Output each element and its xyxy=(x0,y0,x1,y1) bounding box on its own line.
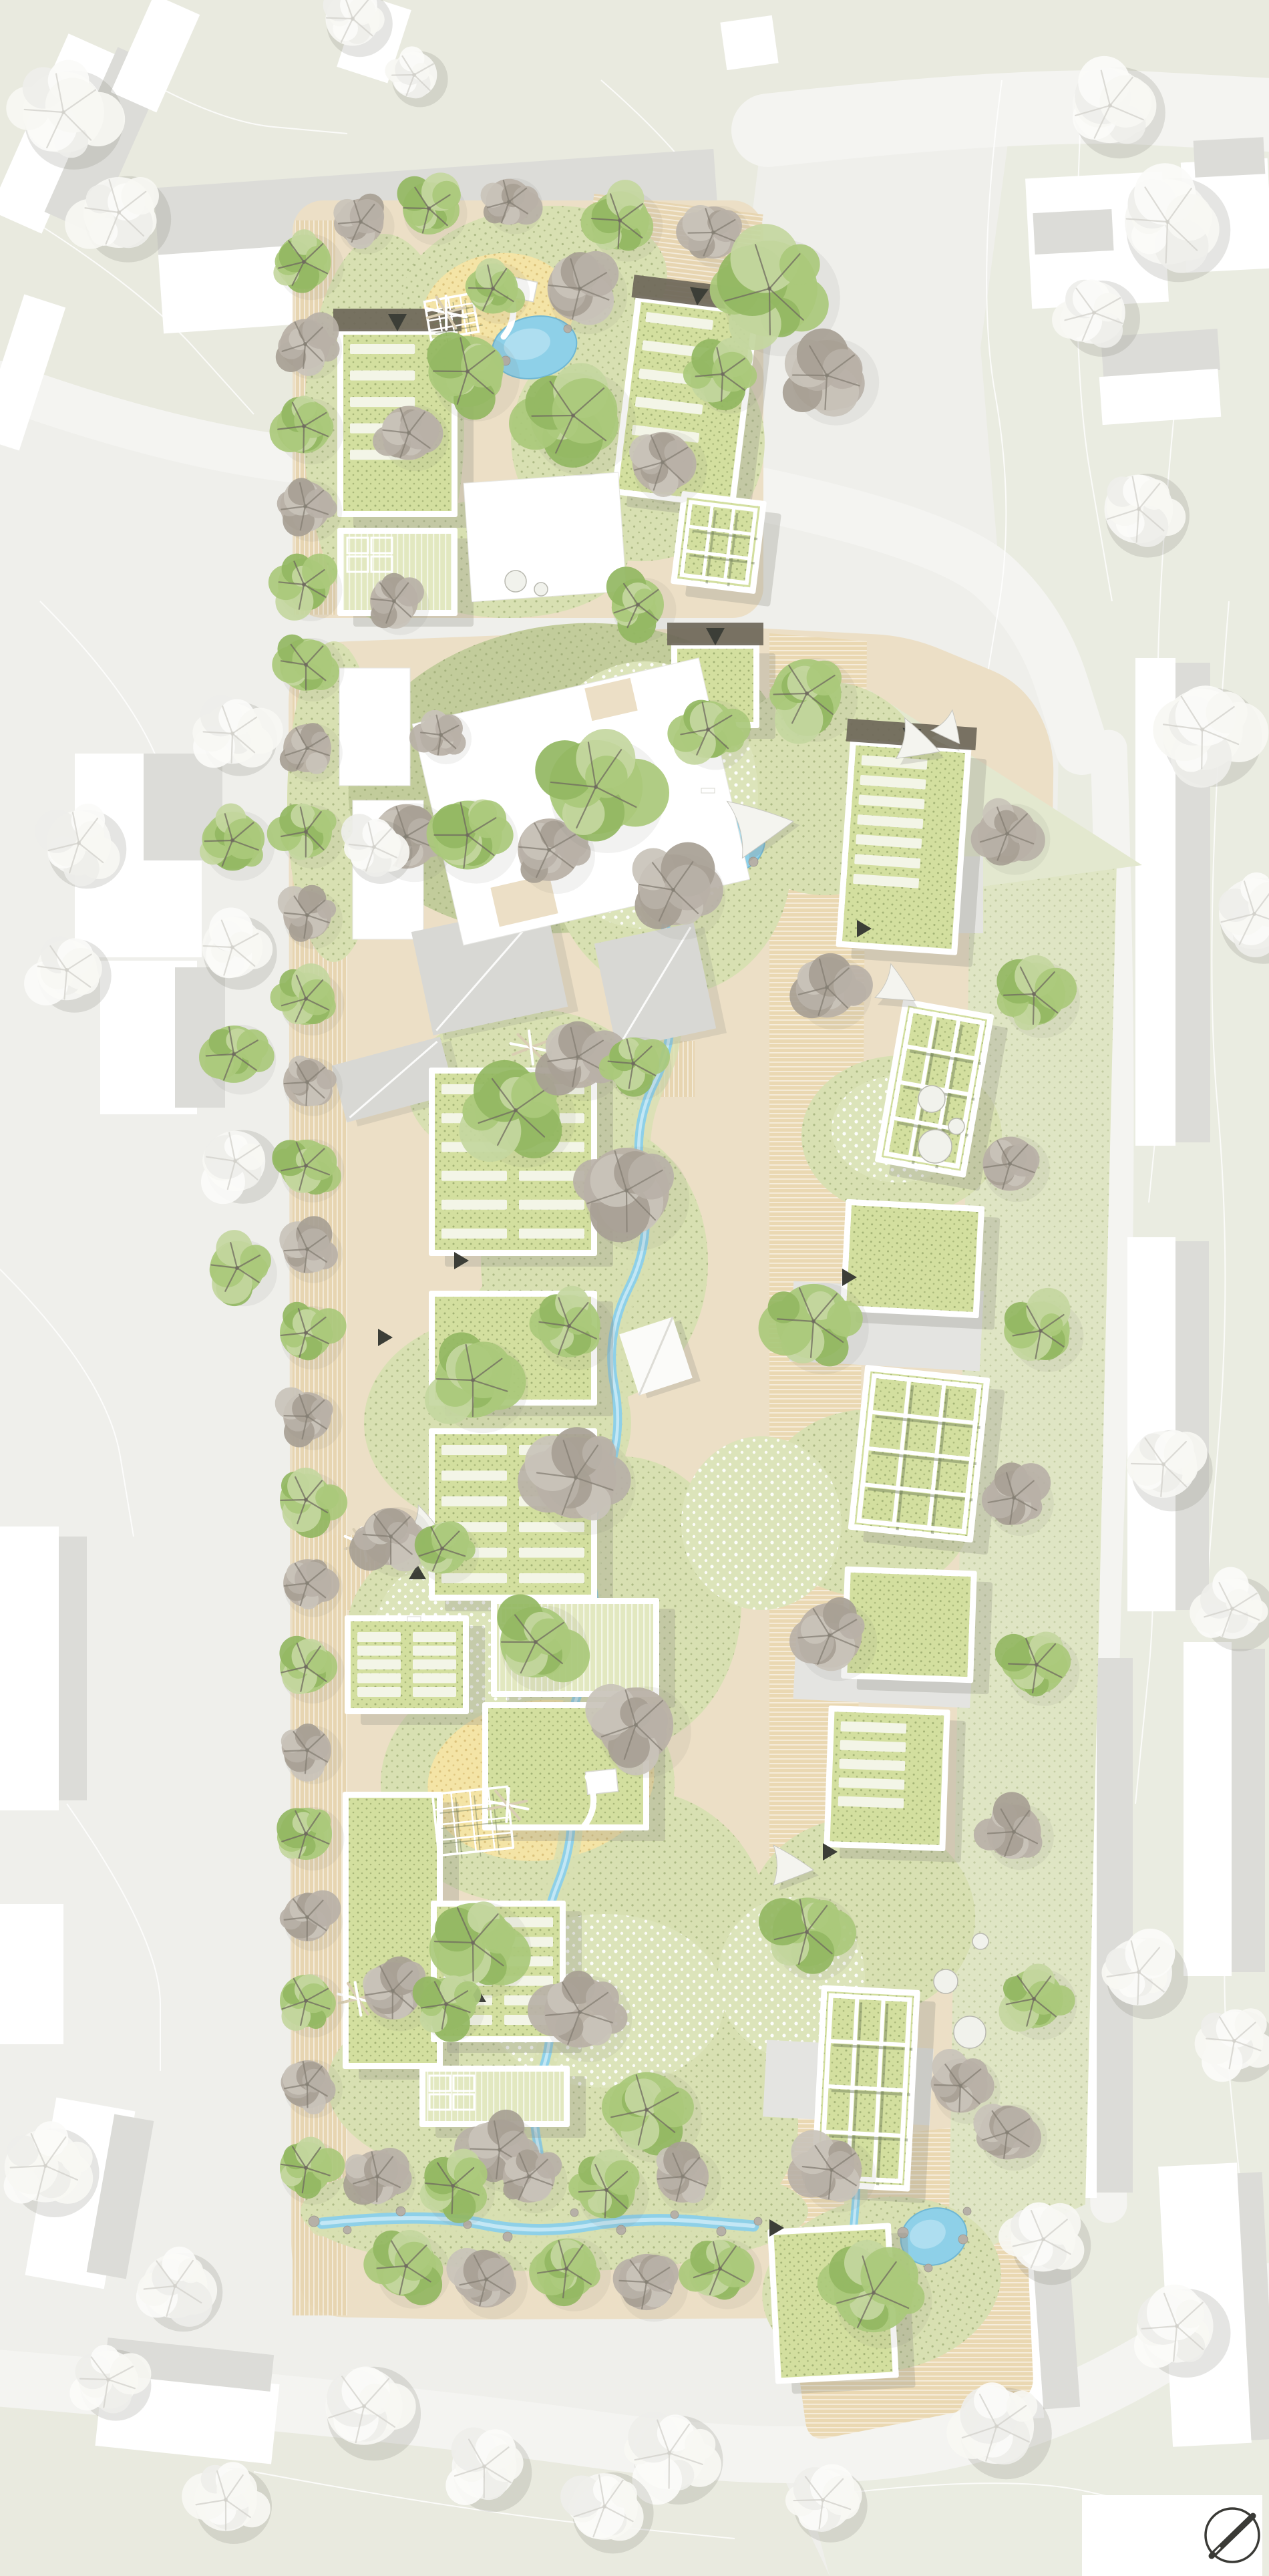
building xyxy=(345,1615,485,1725)
rock xyxy=(924,2264,932,2272)
bench xyxy=(407,1617,421,1621)
context-building xyxy=(1175,1241,1209,1610)
rock xyxy=(503,2232,512,2241)
building xyxy=(339,668,410,786)
tree-y xyxy=(548,251,628,334)
tree-g xyxy=(280,1974,345,2038)
building xyxy=(669,491,783,607)
context-building xyxy=(1033,209,1113,255)
context-building xyxy=(59,1537,87,1800)
building xyxy=(464,472,626,602)
shrub xyxy=(972,1933,988,1949)
tree-y xyxy=(632,842,726,940)
context-building xyxy=(0,1904,63,2044)
shrub xyxy=(948,1118,964,1134)
shrub xyxy=(918,1130,952,1163)
building xyxy=(847,1365,1006,1555)
shrub xyxy=(954,2016,986,2048)
site-plan xyxy=(0,0,1269,2576)
context-building xyxy=(720,15,778,70)
rock xyxy=(963,2207,971,2215)
shrub xyxy=(534,583,548,596)
tree-w xyxy=(201,1130,280,1204)
rock xyxy=(309,2216,319,2227)
rock xyxy=(754,2217,762,2225)
rock xyxy=(671,2211,679,2219)
context-building xyxy=(0,1526,59,1810)
rock xyxy=(343,2226,351,2234)
bench xyxy=(701,788,715,793)
shrub xyxy=(505,571,526,592)
tree-w xyxy=(1195,2008,1269,2082)
rock xyxy=(570,2209,578,2217)
context-building xyxy=(1232,1649,1265,1972)
context-building xyxy=(1184,1642,1232,1976)
rock xyxy=(717,2227,726,2236)
context-building xyxy=(1127,1237,1175,1611)
context-building xyxy=(1194,137,1266,177)
shrub xyxy=(934,1969,958,1993)
context-building xyxy=(1099,369,1222,425)
context-building xyxy=(1097,1658,1133,2193)
building xyxy=(824,1706,966,1863)
north-arrow-icon xyxy=(1206,2509,1259,2562)
rock xyxy=(958,2235,968,2244)
shrub xyxy=(918,1086,945,1112)
site-plan-canvas xyxy=(0,0,1269,2576)
